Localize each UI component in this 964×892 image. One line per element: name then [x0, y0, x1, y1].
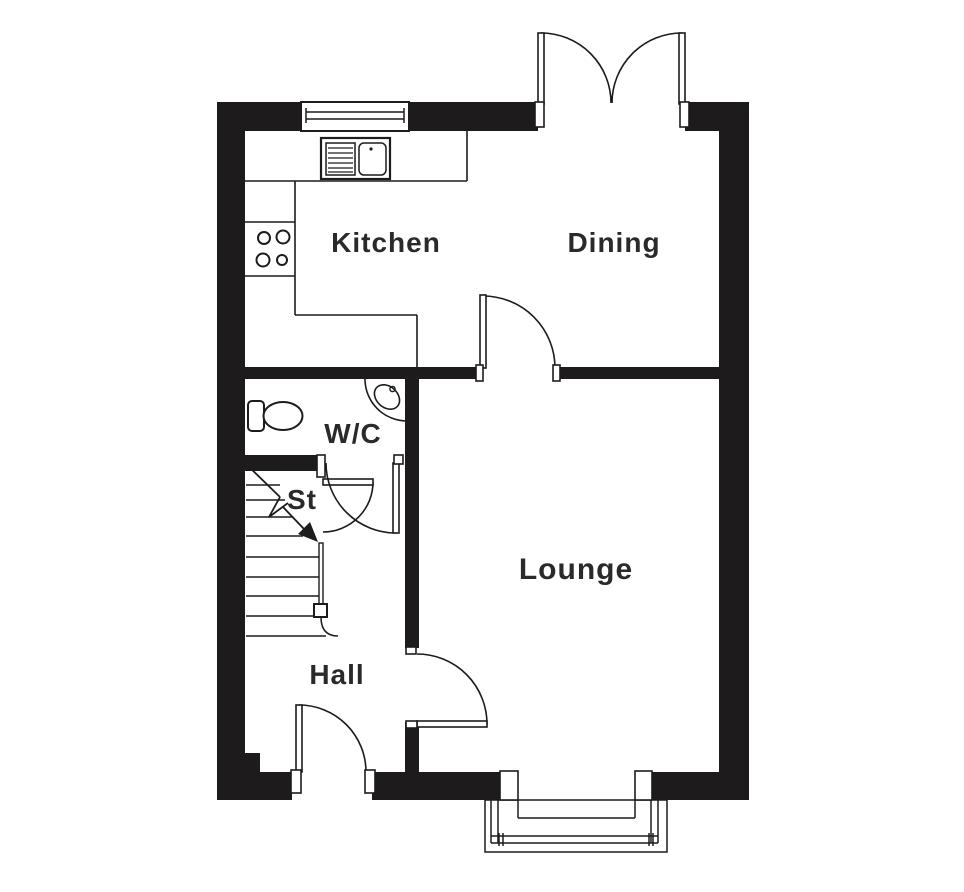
- bottom-wall-mid-segment: [372, 772, 500, 800]
- door-leaf: [417, 721, 487, 727]
- top-wall-mid-segment: [409, 102, 538, 131]
- corner-basin: [365, 379, 407, 421]
- bay-window: [485, 771, 667, 852]
- left-wall-step: [217, 753, 260, 773]
- basin-bowl: [370, 380, 405, 414]
- french-door-leaf-right: [679, 33, 685, 104]
- right-wall: [719, 102, 749, 800]
- bay-jamb-right: [635, 771, 652, 800]
- kitchen-hall-wall: [245, 367, 477, 379]
- left-wall: [217, 102, 245, 753]
- wc-label: W/C: [324, 418, 381, 449]
- stair-bottom-curve: [321, 617, 338, 636]
- plug-hole: [369, 147, 372, 150]
- newel-post: [314, 604, 327, 617]
- french-door-jamb-left: [535, 102, 544, 127]
- front-door-jamb-right: [365, 770, 375, 793]
- interior-walls: [245, 367, 719, 772]
- stairs-label: St: [287, 484, 317, 515]
- wc-door-leaf: [393, 463, 399, 533]
- floorplan-page: Kitchen Dining W/C St Lounge Hall: [0, 0, 964, 892]
- sink-drainer-unit: [321, 138, 390, 179]
- wc-lounge-wall: [405, 367, 419, 648]
- internal-door-dining-lounge: [476, 295, 560, 381]
- exterior-walls: [217, 102, 749, 800]
- french-door-jamb-right: [680, 102, 689, 127]
- door-jamb-right: [553, 365, 560, 381]
- bottom-wall-left-segment: [217, 772, 292, 800]
- front-door-leaf: [296, 705, 302, 772]
- toilet: [248, 401, 303, 431]
- wc-door-arc: [326, 463, 396, 533]
- door-arc: [483, 296, 555, 368]
- hall-label: Hall: [309, 659, 364, 690]
- dining-lounge-wall: [559, 367, 719, 379]
- hall-lounge-door: [406, 647, 487, 728]
- front-door-jamb-left: [291, 770, 301, 793]
- wc-door-jamb-right: [394, 455, 403, 464]
- french-doors: [535, 33, 689, 127]
- french-door-leaf-left: [538, 33, 544, 104]
- hall-lounge-wall-lower: [405, 722, 419, 772]
- french-door-arc-left: [541, 33, 611, 103]
- door-jamb-left: [476, 365, 483, 381]
- door-arc: [417, 654, 487, 724]
- kitchen-window: [301, 102, 409, 131]
- cistern: [248, 401, 264, 431]
- stair-handrail: [319, 543, 323, 606]
- room-labels: Kitchen Dining W/C St Lounge Hall: [287, 227, 661, 690]
- hob-four-rings: [257, 231, 290, 267]
- door-jamb-bottom: [406, 721, 417, 728]
- door-jamb-top: [406, 647, 416, 654]
- kitchen-label: Kitchen: [331, 227, 441, 258]
- front-door-arc: [299, 705, 366, 772]
- toilet-bowl: [264, 402, 303, 430]
- wc-door-jamb-left: [317, 455, 325, 477]
- bay-inner-reveal: [518, 800, 635, 818]
- bay-jamb-left: [500, 771, 518, 800]
- wc-door: [317, 455, 403, 533]
- wc-south-wall: [245, 455, 322, 463]
- store-door-leaf: [323, 479, 373, 485]
- bay-frame: [491, 800, 658, 846]
- dining-label: Dining: [567, 227, 660, 258]
- front-door: [291, 705, 375, 793]
- sink-bowl: [359, 143, 386, 175]
- french-door-arc-right: [612, 33, 682, 103]
- floorplan-drawing: Kitchen Dining W/C St Lounge Hall: [0, 0, 964, 892]
- door-leaf: [480, 295, 486, 368]
- lounge-label: Lounge: [519, 553, 633, 586]
- bay-outer-outline: [485, 800, 667, 852]
